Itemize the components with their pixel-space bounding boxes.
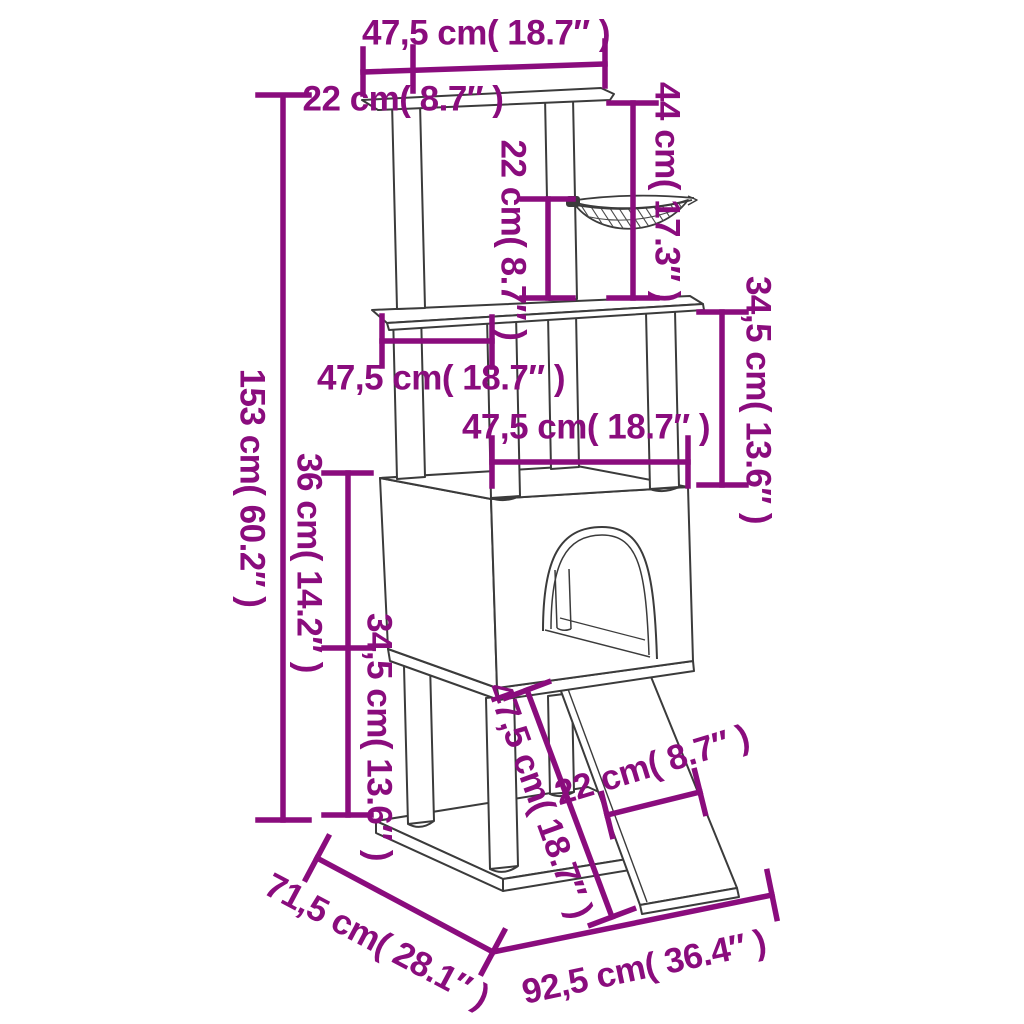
dim-label-lower-section-height: 34,5 cm( 13.6″ ) [362, 613, 397, 861]
dim-label-top-platform-width: 47,5 cm( 18.7″ ) [362, 16, 610, 51]
dim-label-middle-platform-width: 47,5 cm( 18.7″ ) [317, 361, 565, 396]
dim-label-condo-height: 36 cm( 14.2″ ) [292, 453, 327, 673]
dim-label-condo-width: 47,5 cm( 18.7″ ) [462, 410, 710, 445]
dim-label-upper-section-height: 34,5 cm( 13.6″ ) [741, 276, 776, 524]
dim-label-top-platform-depth: 22 cm( 8.7″ ) [303, 82, 504, 117]
dim-label-hammock-height: 22 cm( 8.7″ ) [496, 140, 531, 341]
condo-house [380, 466, 694, 700]
dim-label-total-height: 153 cm( 60.2″ ) [235, 369, 270, 608]
product-dimension-diagram: 47,5 cm( 18.7″ ) 22 cm( 8.7″ ) 44 cm( 17… [0, 0, 1024, 1024]
dim-label-hammock-drop: 44 cm( 17.3″ ) [650, 82, 685, 302]
